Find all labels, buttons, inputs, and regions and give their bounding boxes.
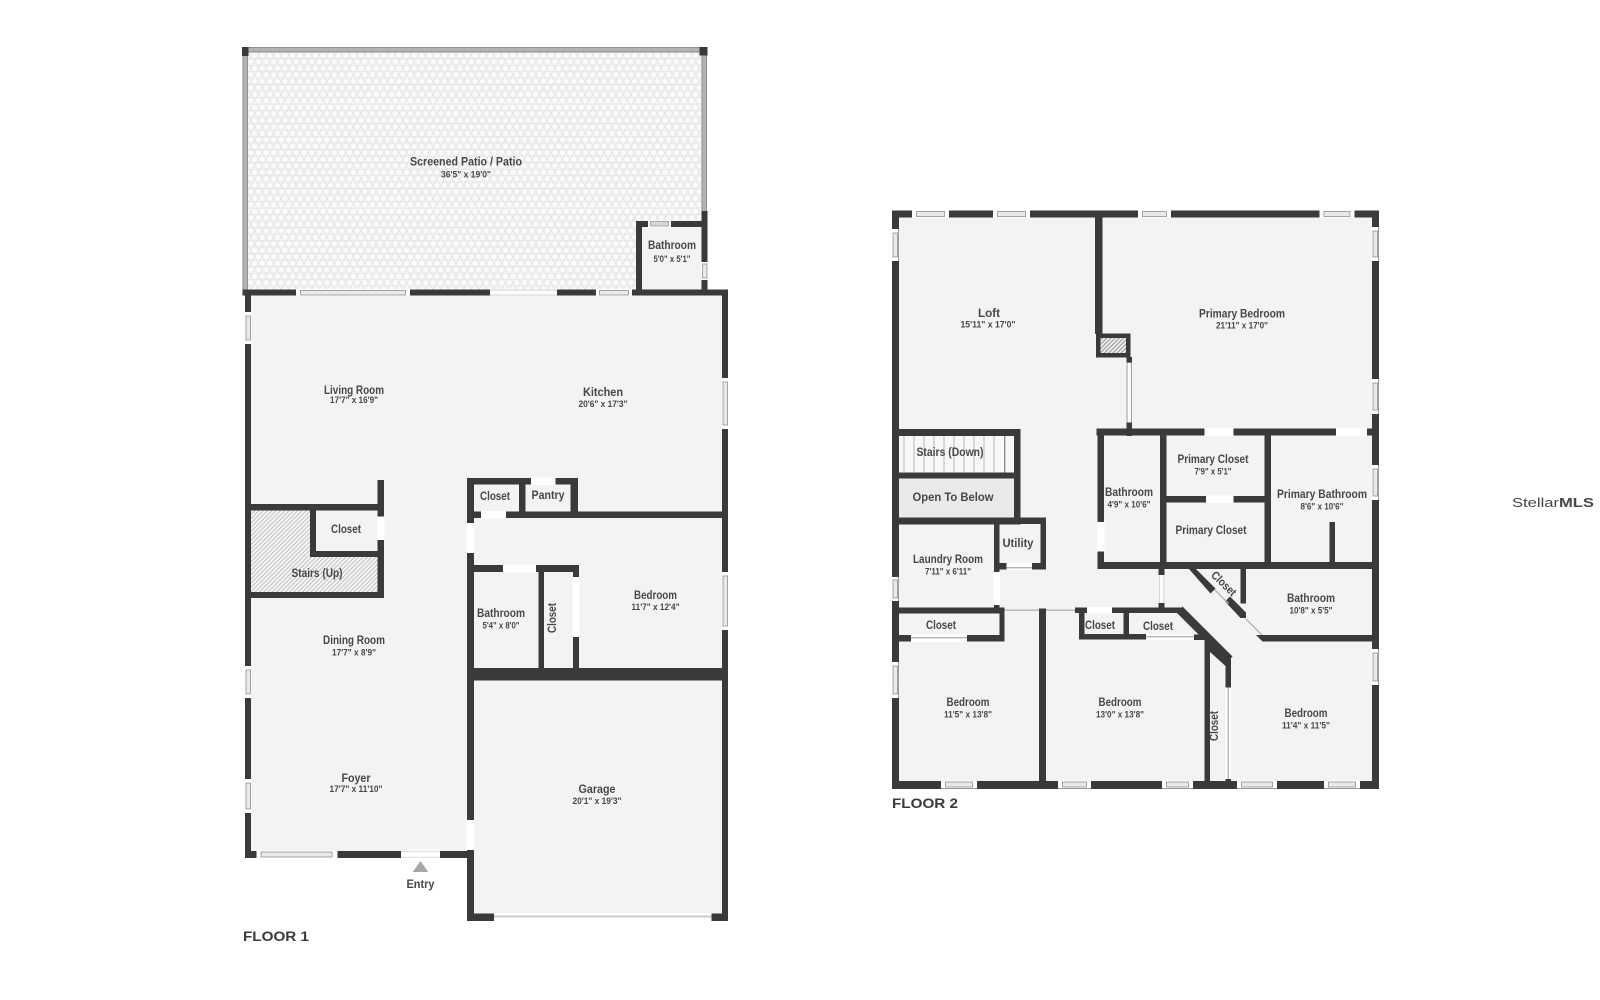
svg-text:Screened Patio / Patio: Screened Patio / Patio bbox=[410, 156, 522, 169]
svg-text:Bathroom: Bathroom bbox=[1105, 486, 1153, 499]
svg-text:Closet: Closet bbox=[1143, 620, 1173, 633]
svg-text:7'11" x 6'11": 7'11" x 6'11" bbox=[925, 567, 971, 577]
svg-text:10'8" x 5'5": 10'8" x 5'5" bbox=[1290, 606, 1333, 616]
svg-text:Utility: Utility bbox=[1003, 537, 1035, 550]
svg-text:15'11" x 17'0": 15'11" x 17'0" bbox=[961, 320, 1016, 330]
svg-text:StellarMLS: StellarMLS bbox=[1512, 496, 1594, 510]
svg-text:Stairs (Up): Stairs (Up) bbox=[292, 567, 343, 580]
svg-text:Dining Room: Dining Room bbox=[323, 634, 385, 647]
svg-text:11'5" x 13'8": 11'5" x 13'8" bbox=[944, 710, 992, 720]
svg-text:FLOOR 2: FLOOR 2 bbox=[892, 796, 958, 811]
svg-text:Bedroom: Bedroom bbox=[1285, 707, 1328, 720]
svg-text:5'4" x 8'0": 5'4" x 8'0" bbox=[483, 621, 520, 631]
svg-text:7'9" x 5'1": 7'9" x 5'1" bbox=[1195, 467, 1232, 477]
svg-text:Closet: Closet bbox=[331, 523, 361, 536]
svg-text:Closet: Closet bbox=[1085, 619, 1115, 632]
svg-text:Primary Bathroom: Primary Bathroom bbox=[1277, 488, 1367, 501]
svg-text:Kitchen: Kitchen bbox=[583, 386, 623, 399]
svg-text:Bedroom: Bedroom bbox=[947, 696, 990, 709]
svg-text:Bathroom: Bathroom bbox=[1287, 592, 1335, 605]
svg-text:17'7" x 16'9": 17'7" x 16'9" bbox=[330, 395, 378, 405]
svg-text:17'7" x 11'10": 17'7" x 11'10" bbox=[330, 784, 383, 794]
svg-text:17'7" x 8'9": 17'7" x 8'9" bbox=[332, 648, 376, 658]
svg-text:Primary Closet: Primary Closet bbox=[1176, 524, 1247, 537]
svg-text:FLOOR 1: FLOOR 1 bbox=[243, 929, 310, 944]
svg-text:Pantry: Pantry bbox=[532, 489, 565, 502]
svg-text:Primary Closet: Primary Closet bbox=[1178, 453, 1249, 466]
svg-text:Bedroom: Bedroom bbox=[634, 589, 677, 602]
svg-text:Laundry Room: Laundry Room bbox=[913, 553, 983, 566]
svg-text:36'5" x 19'0": 36'5" x 19'0" bbox=[441, 170, 491, 180]
svg-text:Bathroom: Bathroom bbox=[648, 239, 696, 252]
svg-text:Entry: Entry bbox=[407, 878, 436, 891]
svg-text:21'11" x 17'0": 21'11" x 17'0" bbox=[1216, 321, 1268, 331]
svg-text:5'0" x 5'1": 5'0" x 5'1" bbox=[654, 254, 691, 264]
svg-text:Closet: Closet bbox=[480, 490, 510, 503]
svg-text:13'0" x 13'8": 13'0" x 13'8" bbox=[1096, 710, 1144, 720]
svg-text:Closet: Closet bbox=[926, 619, 956, 632]
svg-text:Primary Bedroom: Primary Bedroom bbox=[1199, 308, 1285, 321]
svg-text:4'9" x 10'6": 4'9" x 10'6" bbox=[1108, 500, 1151, 510]
svg-text:Bathroom: Bathroom bbox=[477, 607, 525, 620]
svg-text:Open To Below: Open To Below bbox=[913, 491, 995, 504]
svg-text:Stairs (Down): Stairs (Down) bbox=[917, 446, 984, 459]
svg-text:11'7" x 12'4": 11'7" x 12'4" bbox=[632, 602, 680, 612]
svg-text:20'1" x 19'3": 20'1" x 19'3" bbox=[573, 796, 622, 806]
svg-text:20'6" x 17'3": 20'6" x 17'3" bbox=[579, 399, 628, 409]
svg-text:Garage: Garage bbox=[579, 783, 616, 796]
svg-text:11'4" x 11'5": 11'4" x 11'5" bbox=[1282, 721, 1330, 731]
svg-text:8'6" x 10'6": 8'6" x 10'6" bbox=[1301, 502, 1344, 512]
svg-text:Closet: Closet bbox=[546, 603, 559, 633]
svg-text:Bedroom: Bedroom bbox=[1099, 696, 1142, 709]
svg-text:Loft: Loft bbox=[978, 307, 1000, 320]
